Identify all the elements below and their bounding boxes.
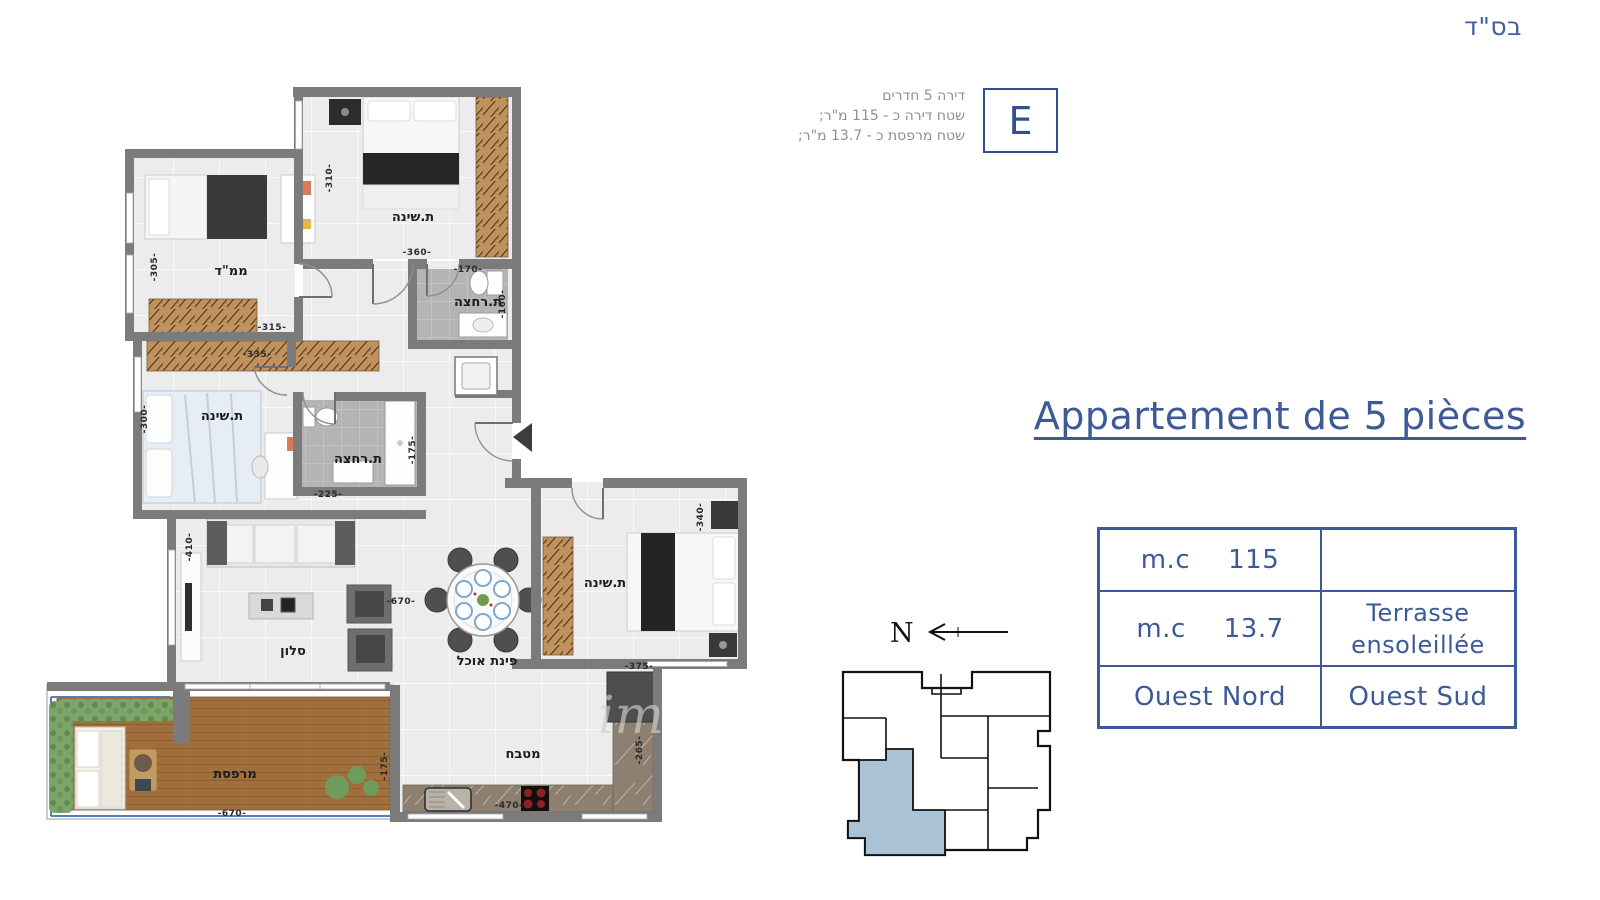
terrace-hedge-top — [57, 699, 175, 721]
svg-text:-225-: -225- — [314, 490, 343, 500]
building-footprint: N — [828, 608, 1058, 858]
closet-bedroom-top — [476, 97, 508, 257]
spec-cell-terrace-label: Terrasse ensoleillée — [1320, 590, 1514, 665]
room-label-bath-top: ת.רחצה — [454, 295, 502, 310]
svg-text:-470-: -470- — [495, 801, 524, 811]
unit-desc-line-1: דירה 5 חדרים — [685, 86, 965, 106]
spec-cell-terrace-area: m.c 13.7 — [1100, 590, 1320, 665]
svg-text:-160-: -160- — [498, 290, 508, 319]
closet-bedroom-right — [543, 537, 573, 655]
spec-cell-empty — [1320, 530, 1514, 590]
area-unit-label: m.c — [1141, 545, 1190, 575]
room-label-bedroom-left: ת.שינה — [201, 409, 243, 424]
room-label-bath-middle: ת.רחצה — [334, 452, 382, 467]
spec-table: m.c 115 m.c 13.7 Terrasse ensoleillée Ou… — [1097, 527, 1517, 729]
north-arrow-icon — [930, 624, 1008, 640]
utility-shaft — [455, 357, 497, 395]
room-label-terrace: מרפסת — [213, 767, 257, 782]
footprint-outline — [843, 672, 1050, 855]
spec-cell-orientation-2: Ouest Sud — [1320, 665, 1514, 726]
svg-text:-175-: -175- — [408, 436, 418, 465]
room-label-mamad: ממ"ד — [214, 264, 247, 279]
terrace-value: 13.7 — [1224, 614, 1284, 644]
svg-text:-410-: -410- — [185, 533, 195, 562]
room-label-bedroom-right: ת.שינה — [584, 576, 626, 591]
unit-desc-line-3: שטח מרפסת כ - 13.7 מ"ר; — [685, 126, 965, 146]
unit-desc-line-2: שטח דירה כ - 115 מ"ר; — [685, 106, 965, 126]
terrace-unit-label: m.c — [1136, 614, 1185, 644]
svg-text:-360-: -360- — [403, 248, 432, 258]
svg-text:-375-: -375- — [625, 662, 654, 672]
svg-text:-340-: -340- — [696, 503, 706, 532]
terrace — [47, 685, 393, 819]
closet-mamad — [149, 299, 257, 333]
unit-letter: E — [1008, 99, 1032, 143]
svg-text:-170-: -170- — [454, 265, 483, 275]
unit-letter-badge: E — [983, 88, 1058, 153]
photo-watermark: im — [598, 686, 664, 746]
svg-text:-305-: -305- — [150, 253, 160, 282]
floor-plan: im ת.שינה ממ"ד ת.רחצה ת.שינה ת.רחצה סלון… — [35, 85, 750, 835]
page-title: Appartement de 5 pièces — [1010, 394, 1550, 438]
svg-text:-670-: -670- — [218, 809, 247, 819]
svg-text:-265-: -265- — [635, 736, 645, 765]
room-label-bedroom-top: ת.שינה — [392, 210, 434, 225]
svg-text:-300-: -300- — [140, 405, 150, 434]
room-label-living: סלון — [280, 644, 306, 659]
area-value: 115 — [1228, 545, 1279, 575]
outdoor-sofa — [75, 727, 125, 809]
entrance-arrow-icon — [513, 423, 532, 452]
svg-text:-310-: -310- — [325, 164, 335, 193]
mamad-furniture — [145, 175, 315, 243]
room-label-dining: פינת אוכל — [457, 654, 518, 669]
svg-text:-335-: -335- — [243, 350, 272, 360]
spec-cell-area: m.c 115 — [1100, 530, 1320, 590]
north-label: N — [890, 618, 914, 649]
svg-text:-175-: -175- — [380, 752, 390, 781]
outdoor-table — [129, 749, 157, 791]
svg-text:-670-: -670- — [387, 597, 416, 607]
stove — [521, 786, 549, 811]
spec-cell-orientation-1: Ouest Nord — [1100, 665, 1320, 726]
unit-description: דירה 5 חדרים שטח דירה כ - 115 מ"ר; שטח מ… — [685, 86, 965, 146]
kitchen-sink — [425, 788, 471, 811]
bsd-text: בס"ד — [1464, 12, 1522, 41]
svg-text:-315-: -315- — [258, 323, 287, 333]
room-label-kitchen: מטבח — [505, 747, 540, 762]
